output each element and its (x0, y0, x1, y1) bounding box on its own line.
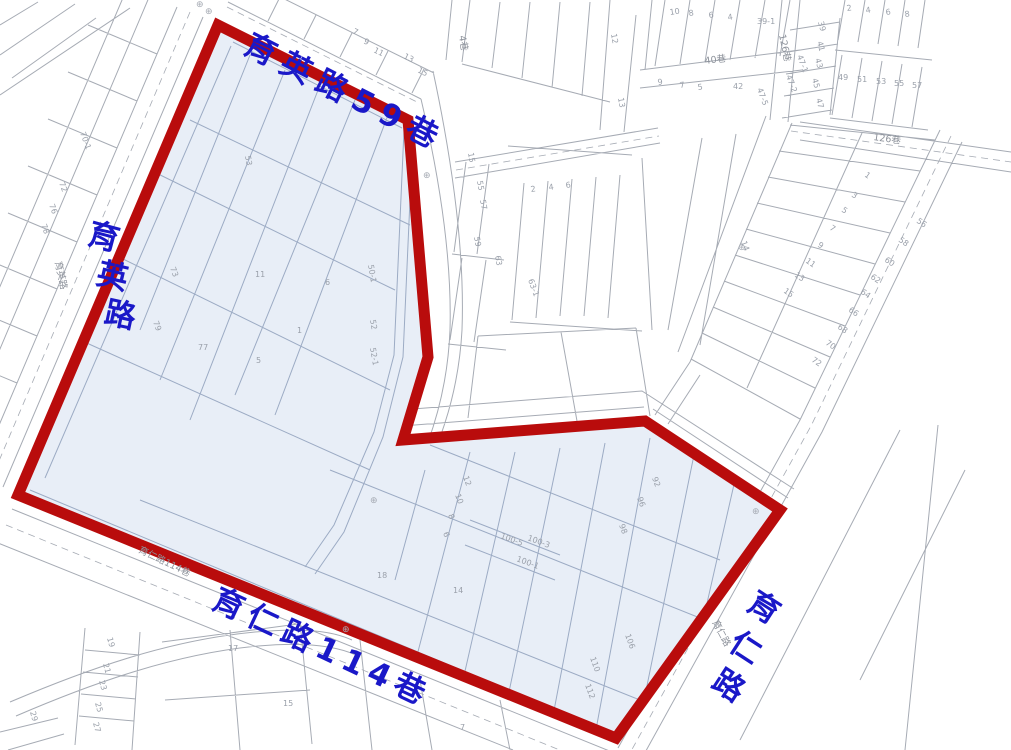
survey-marker-icon: ⊕ (738, 243, 746, 253)
road-sublabel: 126巷 (776, 33, 793, 63)
road-sublabel: 4巷 (456, 35, 470, 53)
parcel-number: 41 (815, 40, 826, 52)
parcel-number: 5 (256, 356, 261, 365)
parcel-number: 9 (816, 240, 825, 250)
parcel-number: 1 (297, 326, 302, 335)
parcel-number: 7 (460, 723, 465, 732)
road-sublabel: 126巷 (873, 132, 902, 147)
parcel-number: 53 (876, 77, 886, 86)
parcel-number: 2 (530, 184, 536, 194)
parcel-number: 57 (478, 199, 489, 211)
parcel-number: 18 (377, 571, 387, 580)
road-sublabel: 40巷 (704, 53, 727, 67)
parcel-number: 63 (493, 255, 504, 267)
survey-marker-icon: ⊕ (423, 171, 431, 181)
parcel-number: 1 (863, 170, 872, 180)
parcel-number: 55 (475, 180, 486, 192)
parcel-number: 55 (894, 79, 904, 88)
parcel-number: 7 (679, 80, 685, 90)
map-canvas: 育英路59巷育仁路114巷育英路育仁路40巷126巷126巷4巷育仁路114巷育… (0, 0, 1011, 750)
parcel-number: 12 (609, 33, 620, 45)
parcel-number: 17 (228, 644, 238, 653)
parcel-number: 64 (859, 287, 873, 300)
road-sublabel: 育仁路 (709, 618, 733, 649)
cadastral-map-svg: 育英路59巷育仁路114巷育英路育仁路40巷126巷126巷4巷育仁路114巷育… (0, 0, 1011, 750)
parcel-number: 56 (915, 216, 929, 229)
parcel-number: 39 (816, 20, 827, 32)
parcel-number: 45 (810, 77, 821, 89)
parcel-number: 49 (838, 73, 848, 82)
parcel-number: 4 (865, 5, 871, 15)
parcel-number: 47 (814, 97, 825, 109)
parcel-number: 23 (97, 679, 108, 691)
parcel-number: 29 (28, 710, 39, 722)
survey-marker-icon: ⊕ (370, 496, 378, 506)
parcel-number: 52 (368, 319, 379, 331)
parcel-number: 53 (243, 155, 254, 167)
parcel-number: 47-5 (755, 87, 770, 107)
parcel-number: 72 (810, 355, 824, 368)
street-label-yuren-rd: 路 (706, 663, 752, 711)
parcel-number: 8 (688, 8, 694, 18)
parcel-number: 2 (846, 3, 852, 13)
parcel-number: 15 (416, 66, 429, 79)
street-label-yuren-rd: 育 (741, 585, 787, 632)
parcel-number: 15 (283, 699, 293, 708)
survey-marker-icon: ⊕ (342, 625, 350, 635)
parcel-number: 15 (782, 286, 796, 299)
parcel-number: 6 (325, 278, 330, 287)
parcel-number: 70 (824, 338, 838, 351)
parcel-number: 4 (548, 182, 554, 192)
parcel-number: 59 (472, 236, 483, 248)
parcel-number: 77 (198, 343, 208, 352)
parcel-number: 25 (93, 701, 104, 713)
parcel-number: 8 (904, 9, 910, 19)
parcel-number: 27 (91, 721, 102, 733)
parcel-number: 19 (105, 636, 116, 648)
parcel-number: 21 (101, 662, 112, 674)
parcel-number: 6 (885, 7, 891, 17)
parcel-number: 47-2 (784, 74, 799, 94)
parcel-number: 58 (897, 235, 911, 248)
survey-marker-icon: ⊕ (752, 507, 760, 517)
survey-marker-icon: ⊕ (205, 7, 213, 17)
parcel-number: 70-1 (78, 131, 93, 151)
parcel-number: 60 (883, 255, 897, 268)
parcel-number: 9 (657, 77, 663, 87)
parcel-number: 13 (616, 97, 627, 109)
parcel-number: 57 (912, 81, 922, 90)
parcel-number: 66 (847, 305, 861, 318)
parcel-number: 63-1 (526, 278, 541, 298)
parcel-number: 5 (840, 205, 849, 215)
parcel-number: 68 (836, 322, 850, 335)
parcel-number: 39-1 (757, 17, 775, 26)
survey-marker-icon: ⊕ (196, 0, 204, 10)
parcel-number: 5 (697, 82, 703, 92)
parcel-number: 14 (453, 586, 463, 595)
parcel-number: 4 (727, 12, 733, 22)
parcel-number: 7 (828, 223, 837, 233)
parcel-number: 6 (565, 180, 571, 190)
parcel-number: 10 (669, 7, 680, 17)
parcel-number: 15 (466, 152, 477, 164)
parcel-number: 11 (255, 270, 265, 279)
parcel-number: 51 (857, 75, 867, 84)
parcel-number: 42 (733, 82, 743, 91)
parcel-number: 43 (813, 57, 824, 69)
